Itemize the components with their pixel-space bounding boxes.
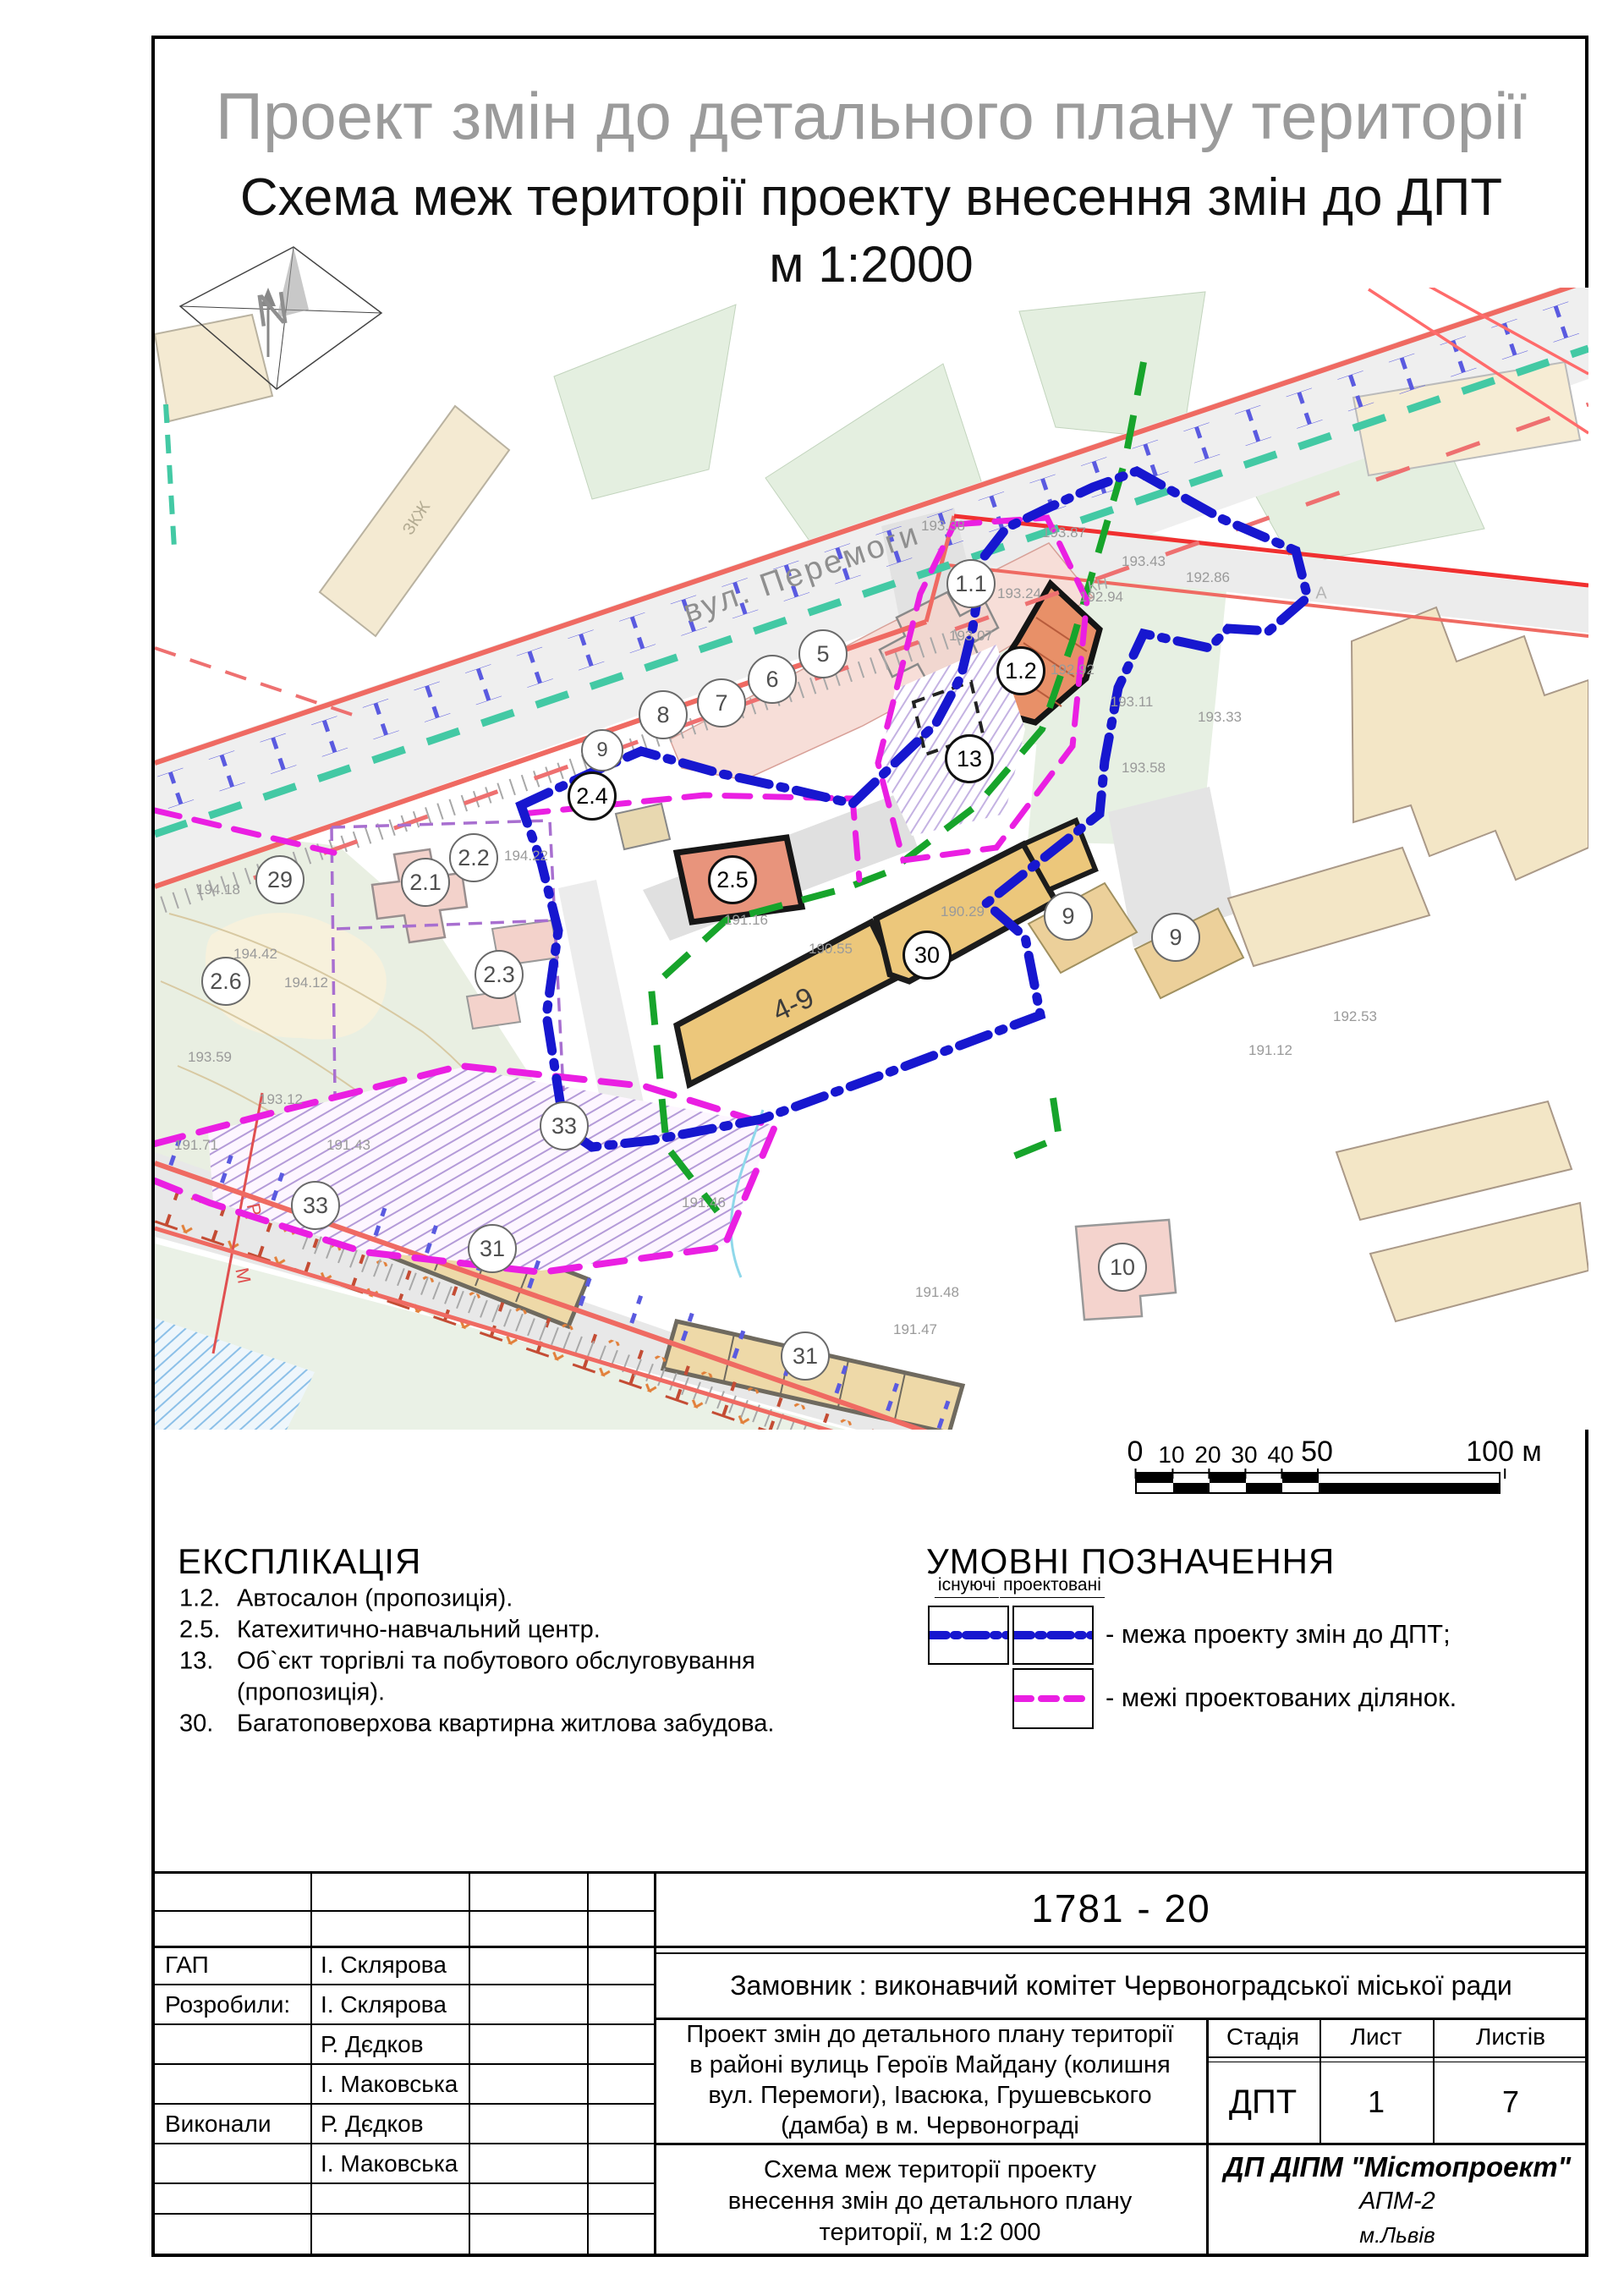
map-zone-circle: 29 bbox=[255, 855, 304, 904]
titleblock-role-row: Розробили:І. Склярова bbox=[155, 1985, 654, 2025]
explication-item: 1.2.Автосалон (пропозиція). bbox=[179, 1585, 513, 1613]
stage-value: ДПТ bbox=[1206, 2062, 1319, 2143]
drawing-sheet: Проект змін до детального плану територі… bbox=[0, 0, 1624, 2295]
map-zone-circle: 1.2 bbox=[996, 646, 1045, 695]
project-title-line: (дамба) в м. Червонограді bbox=[781, 2111, 1079, 2141]
map-zone-circle: 8 bbox=[639, 690, 688, 739]
elevation-mark: 193.43 bbox=[1122, 553, 1166, 570]
elevation-mark: 192.86 bbox=[1186, 569, 1230, 586]
elevation-mark: 191.43 bbox=[326, 1137, 370, 1154]
elevation-mark: 192.53 bbox=[1333, 1008, 1377, 1025]
elevation-mark: 190.55 bbox=[809, 941, 853, 958]
elevation-mark: 191.12 bbox=[1248, 1042, 1292, 1059]
elevation-mark: 192.92 bbox=[1051, 662, 1095, 678]
sheet-title-line: внесення змін до детального плану bbox=[728, 2186, 1133, 2217]
elevation-mark: 193.38 bbox=[921, 518, 965, 535]
scale-bar-tick: 20 bbox=[1194, 1441, 1221, 1469]
map-zone-circle: 2.4 bbox=[568, 771, 617, 821]
explication-heading: ЕКСПЛІКАЦІЯ bbox=[178, 1541, 421, 1582]
map-zone-circle: 6 bbox=[748, 655, 797, 704]
elevation-mark: 193.58 bbox=[1122, 760, 1166, 777]
map-zone-circle: 2.6 bbox=[201, 957, 250, 1006]
organization-name: ДП ДІПМ "Містопроект" bbox=[1224, 2150, 1571, 2184]
explication-item: 2.5.Катехитично-навчальний центр. bbox=[179, 1617, 601, 1644]
map-scale-text: м 1:2000 bbox=[769, 235, 973, 294]
legend-swatch-existing-boundary bbox=[928, 1606, 1009, 1665]
titleblock-role-row: ГАПІ. Склярова bbox=[155, 1946, 654, 1985]
map-zone-circle: 9 bbox=[1151, 913, 1200, 962]
sheet-title-line: території, м 1:2 000 bbox=[820, 2217, 1041, 2248]
elevation-mark: 194.12 bbox=[284, 975, 328, 991]
map-zone-circle: 33 bbox=[540, 1101, 589, 1150]
elevation-mark: 191.16 bbox=[724, 912, 768, 929]
legend-caption-parcel-boundary: - межі проектованих ділянок. bbox=[1106, 1683, 1457, 1713]
sheets-value: 7 bbox=[1433, 2062, 1588, 2143]
map-zone-circle: 31 bbox=[468, 1224, 517, 1273]
legend-caption-dpt-boundary: - межа проекту змін до ДПТ; bbox=[1106, 1619, 1451, 1650]
map-zone-circle: 2.3 bbox=[475, 950, 524, 999]
titleblock-role-row: І. Маковська bbox=[155, 2065, 654, 2105]
map-text-label: А bbox=[1315, 585, 1326, 604]
map-zone-circle: 31 bbox=[781, 1331, 830, 1381]
titleblock-role-row: ВиконалиР. Дєдков bbox=[155, 2105, 654, 2144]
project-title-line: в районі вулиць Героїв Майдану (колишня bbox=[689, 2050, 1170, 2080]
elevation-mark: 193.59 bbox=[188, 1049, 232, 1066]
elevation-mark: 194.18 bbox=[196, 881, 240, 898]
map-zone-circle: 9 bbox=[581, 729, 623, 771]
elevation-mark: 193.07 bbox=[949, 628, 993, 645]
explication-item: (пропозиція). bbox=[179, 1679, 385, 1707]
client-line: Замовник : виконавчий комітет Червоногра… bbox=[654, 1954, 1588, 2018]
explication-item: 30.Багатоповерхова квартирна житлова заб… bbox=[179, 1710, 774, 1738]
stage-header: Стадія bbox=[1206, 2018, 1319, 2056]
scale-bar-tick: 50 bbox=[1301, 1436, 1333, 1469]
organization-city: м.Львів bbox=[1359, 2218, 1435, 2252]
sheet-subtitle: Схема меж території проекту внесення змі… bbox=[240, 167, 1502, 228]
legend-col-existing: існуючі bbox=[935, 1575, 999, 1598]
scale-bar-tick: 10 bbox=[1158, 1441, 1184, 1469]
elevation-mark: 193.87 bbox=[1042, 524, 1086, 541]
project-title-cell: Проект змін до детального плану територі… bbox=[654, 2018, 1206, 2143]
elevation-mark: 194.22 bbox=[504, 848, 548, 865]
sheet-header: Лист bbox=[1319, 2018, 1433, 2056]
map-zone-circle: 1.1 bbox=[946, 559, 996, 608]
map-zone-circle: 2.2 bbox=[449, 833, 498, 882]
map-zone-circle: 9 bbox=[1044, 892, 1093, 941]
map-text-label: N bbox=[252, 282, 292, 338]
map-zone-circle: 10 bbox=[1098, 1243, 1147, 1292]
titleblock-roles: ГАПІ. Склярова Розробили:І. Склярова Р. … bbox=[155, 1946, 654, 2184]
sheet-value: 1 bbox=[1319, 2062, 1433, 2143]
elevation-mark: 193.11 bbox=[1111, 694, 1154, 711]
titleblock-line bbox=[155, 1910, 654, 1912]
scale-bar-tick: 40 bbox=[1267, 1441, 1293, 1469]
sheets-header: Листів bbox=[1433, 2018, 1588, 2056]
map-zone-circle: 2.1 bbox=[401, 858, 450, 907]
map-zone-circle: 13 bbox=[945, 734, 994, 783]
elevation-mark: 191.71 bbox=[174, 1137, 218, 1154]
site-plan-map bbox=[155, 288, 1588, 1430]
legend-swatch-proposed-boundary bbox=[1012, 1606, 1094, 1665]
project-title-line: Проект змін до детального плану територі… bbox=[686, 2019, 1173, 2050]
titleblock-line bbox=[155, 2213, 654, 2215]
map-zone-circle: 33 bbox=[291, 1181, 340, 1230]
sheet-title-cell: Схема меж території проекту внесення змі… bbox=[654, 2145, 1206, 2257]
legend-swatch-parcel-boundary bbox=[1012, 1668, 1094, 1729]
titleblock-role-row: Р. Дєдков bbox=[155, 2025, 654, 2065]
explication-item: 13.Об`єкт торгівлі та побутового обслуго… bbox=[179, 1648, 755, 1676]
sheet-title-line: Схема меж території проекту bbox=[764, 2155, 1096, 2186]
titleblock-role-row: І. Маковська bbox=[155, 2144, 654, 2184]
organization-dept: АПМ-2 bbox=[1359, 2184, 1435, 2218]
organization-cell: ДП ДІПМ "Містопроект" АПМ-2 м.Львів bbox=[1206, 2145, 1588, 2257]
elevation-mark: 193.33 bbox=[1198, 709, 1242, 726]
legend-col-proposed: проектовані bbox=[1000, 1575, 1105, 1598]
document-title: Проект змін до детального плану територі… bbox=[216, 78, 1527, 155]
elevation-mark: 194.42 bbox=[233, 946, 277, 963]
project-number: 1781 - 20 bbox=[654, 1871, 1588, 1946]
elevation-mark: 193.24 bbox=[997, 585, 1041, 602]
map-zone-circle: 2.5 bbox=[708, 855, 757, 904]
elevation-mark: 191.46 bbox=[682, 1194, 726, 1211]
scale-bar-tick: 30 bbox=[1231, 1441, 1257, 1469]
project-title-line: вул. Перемоги), Івасюка, Грушевського bbox=[708, 2080, 1151, 2111]
elevation-mark: 193.12 bbox=[259, 1091, 303, 1108]
map-text-label: КН bbox=[1087, 575, 1110, 596]
scale-bar-tick: 0 bbox=[1127, 1436, 1144, 1469]
elevation-mark: 190.29 bbox=[941, 903, 985, 920]
map-zone-circle: 7 bbox=[697, 678, 746, 727]
elevation-mark: 191.48 bbox=[915, 1284, 959, 1301]
map-zone-circle: 5 bbox=[798, 629, 848, 678]
elevation-mark: 191.47 bbox=[893, 1321, 937, 1338]
scale-bar-tick: 100 м bbox=[1466, 1436, 1542, 1469]
titleblock-line bbox=[1206, 2056, 1588, 2058]
map-zone-circle: 30 bbox=[903, 931, 952, 980]
